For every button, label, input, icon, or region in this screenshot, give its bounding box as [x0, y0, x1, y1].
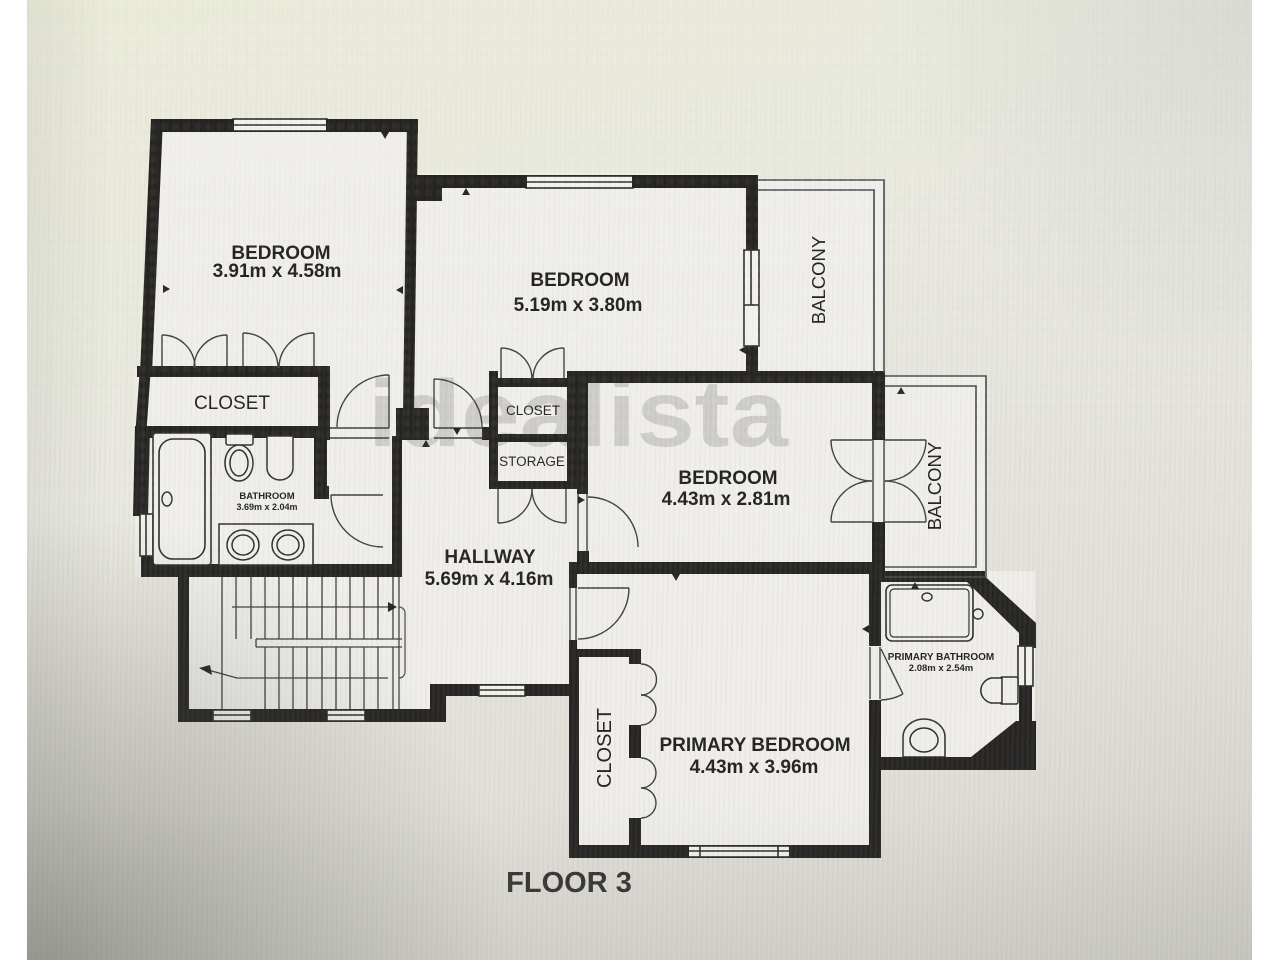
- svg-text:BALCONY: BALCONY: [924, 442, 945, 530]
- svg-text:CLOSET: CLOSET: [194, 393, 270, 414]
- svg-text:PRIMARY BATHROOM: PRIMARY BATHROOM: [888, 652, 994, 663]
- svg-text:BATHROOM: BATHROOM: [239, 491, 294, 502]
- svg-text:CLOSET: CLOSET: [506, 403, 560, 418]
- svg-text:5.19m x 3.80m: 5.19m x 3.80m: [514, 295, 643, 316]
- svg-text:4.43m x 2.81m: 4.43m x 2.81m: [662, 489, 791, 510]
- svg-text:PRIMARY BEDROOM: PRIMARY BEDROOM: [659, 735, 850, 756]
- svg-text:4.43m x 3.96m: 4.43m x 3.96m: [690, 757, 819, 778]
- svg-text:FLOOR 3: FLOOR 3: [506, 867, 632, 899]
- svg-text:3.69m x 2.04m: 3.69m x 2.04m: [236, 502, 297, 512]
- svg-text:2.08m x 2.54m: 2.08m x 2.54m: [909, 663, 973, 674]
- svg-text:5.69m x 4.16m: 5.69m x 4.16m: [425, 569, 554, 590]
- svg-text:3.91m x 4.58m: 3.91m x 4.58m: [213, 261, 342, 282]
- svg-text:BALCONY: BALCONY: [808, 236, 829, 324]
- svg-text:BEDROOM: BEDROOM: [678, 468, 777, 489]
- svg-text:CLOSET: CLOSET: [594, 708, 616, 788]
- svg-text:HALLWAY: HALLWAY: [444, 547, 535, 568]
- svg-text:STORAGE: STORAGE: [499, 454, 565, 469]
- svg-text:BEDROOM: BEDROOM: [530, 270, 629, 291]
